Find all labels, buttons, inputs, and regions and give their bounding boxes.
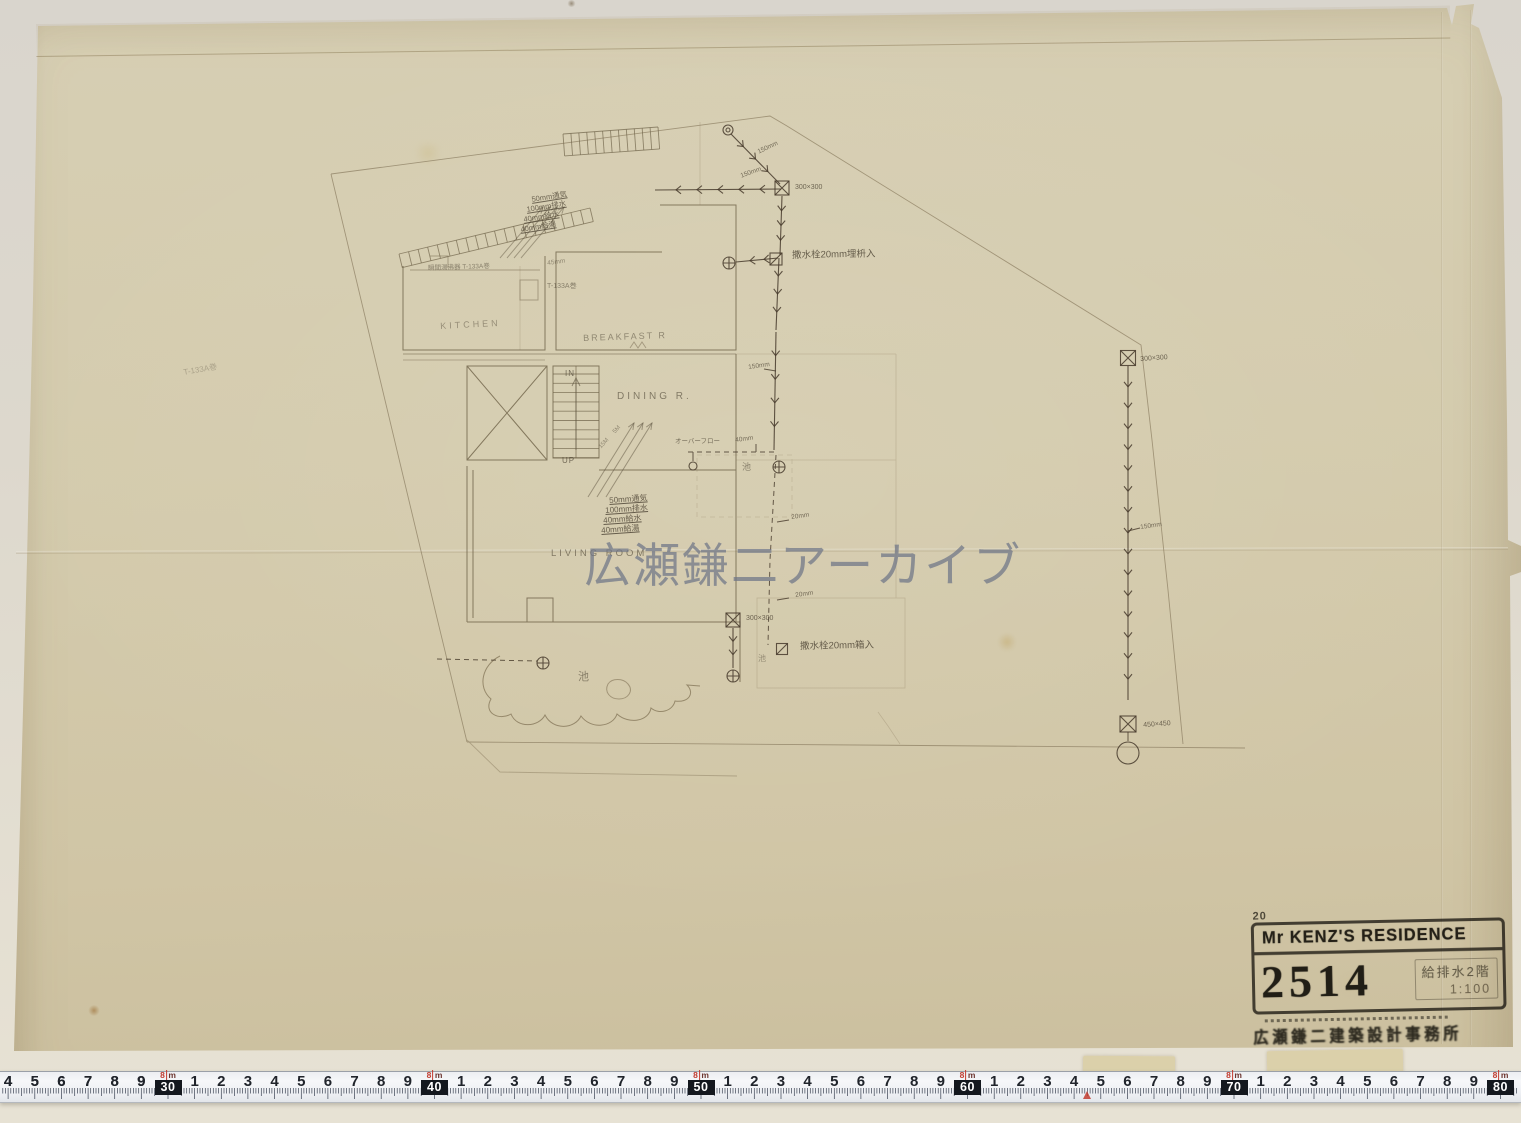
ruler-digit: 4 xyxy=(270,1073,278,1090)
stamp-dotted-edge xyxy=(1265,1013,1448,1023)
ruler-digit: 8 xyxy=(111,1073,119,1090)
ruler-major-number: 30 xyxy=(155,1080,182,1095)
ruler-digit: 6 xyxy=(324,1073,332,1090)
site-boundary xyxy=(331,116,1245,776)
plan-annotation: UP xyxy=(562,457,575,465)
ruler-digit: 2 xyxy=(1017,1073,1025,1090)
ruler-digit: 4 xyxy=(803,1073,811,1090)
ruler-digit: 7 xyxy=(1150,1073,1158,1090)
project-title: Mr KENZ'S RESIDENCE xyxy=(1254,920,1503,956)
ruler-digit: 2 xyxy=(217,1073,225,1090)
ruler-digit: 4 xyxy=(4,1073,12,1090)
ruler-digit: 8 xyxy=(377,1073,385,1090)
ruler-meter-label: 8m xyxy=(1226,1071,1242,1080)
ruler-digit: 6 xyxy=(1123,1073,1131,1090)
plan-annotation: DINING R. xyxy=(617,392,692,402)
plan-annotation: IN xyxy=(565,370,575,378)
plan-annotation: 撒水栓20mm箱入 xyxy=(800,641,874,652)
drawing-scale: 1:100 xyxy=(1422,982,1492,997)
ruler-major-number: 80 xyxy=(1487,1080,1514,1095)
ruler-digit: 7 xyxy=(350,1073,358,1090)
ruler-meter-label: 8m xyxy=(693,1071,709,1080)
drawing-title: 給排水2階 xyxy=(1421,961,1491,981)
ruler-digit: 1 xyxy=(1256,1073,1264,1090)
ruler-digit: 4 xyxy=(1070,1073,1078,1090)
sheet-number-note: 20 xyxy=(1252,910,1266,922)
title-block-border: Mr KENZ'S RESIDENCE 2514 給排水2階 1:100 xyxy=(1251,917,1507,1014)
ruler-digit: 5 xyxy=(830,1073,838,1090)
ruler-meter-label: 8m xyxy=(160,1071,176,1080)
ruler-digit: 1 xyxy=(723,1073,731,1090)
ruler-digit: 3 xyxy=(1043,1073,1051,1090)
ruler-tick-marks xyxy=(0,1072,1521,1102)
title-block-stamp: 20 Mr KENZ'S RESIDENCE 2514 給排水2階 1:100 … xyxy=(1251,917,1508,1047)
ruler-digit: 4 xyxy=(537,1073,545,1090)
ruler-digit: 6 xyxy=(590,1073,598,1090)
ruler-digit: 5 xyxy=(564,1073,572,1090)
ruler-digit: 1 xyxy=(457,1073,465,1090)
ruler-digit: 6 xyxy=(1390,1073,1398,1090)
ruler-meter-label: 8m xyxy=(427,1071,443,1080)
ruler-digit: 9 xyxy=(937,1073,945,1090)
ruler-digit: 7 xyxy=(617,1073,625,1090)
ruler-digit: 9 xyxy=(670,1073,678,1090)
ruler-digit: 9 xyxy=(1470,1073,1478,1090)
ruler-major-number: 40 xyxy=(421,1080,448,1095)
ruler-digit: 3 xyxy=(1310,1073,1318,1090)
plan-annotation: T-133A巻 xyxy=(547,283,577,290)
drawing-number: 2514 xyxy=(1254,952,1375,1012)
ruler-digit: 5 xyxy=(1097,1073,1105,1090)
ruler-digit: 9 xyxy=(137,1073,145,1090)
ruler-digit: 6 xyxy=(57,1073,65,1090)
ruler-digit: 3 xyxy=(510,1073,518,1090)
ruler-digit: 7 xyxy=(1416,1073,1424,1090)
ruler-digit: 5 xyxy=(31,1073,39,1090)
ruler-digit: 3 xyxy=(244,1073,252,1090)
plan-annotation: 池 xyxy=(758,655,766,663)
ruler-major-number: 70 xyxy=(1221,1080,1248,1095)
plan-annotation: 池 xyxy=(742,463,751,472)
archive-watermark: 広瀬鎌二アーカイブ xyxy=(584,527,1022,596)
ruler-digit: 2 xyxy=(750,1073,758,1090)
ruler-digit: 1 xyxy=(190,1073,198,1090)
ruler-digit: 2 xyxy=(1283,1073,1291,1090)
ruler-major-number: 50 xyxy=(688,1080,715,1095)
plan-annotation: 撒水栓20mm埋枡入 xyxy=(792,250,876,261)
ruler-digit: 7 xyxy=(84,1073,92,1090)
plan-annotation: 池 xyxy=(578,672,589,683)
measuring-tape-ruler: 4567891234567891234567891234567891234567… xyxy=(0,1071,1521,1103)
ruler-digit: 2 xyxy=(484,1073,492,1090)
plan-annotation: オーバーフロー xyxy=(675,439,720,446)
plan-annotation: 300×300 xyxy=(795,184,822,191)
pond-outline xyxy=(483,656,700,726)
ruler-digit: 9 xyxy=(404,1073,412,1090)
ruler-meter-label: 8m xyxy=(960,1071,976,1080)
ruler-digit: 5 xyxy=(1363,1073,1371,1090)
ruler-digit: 9 xyxy=(1203,1073,1211,1090)
ruler-major-number: 60 xyxy=(954,1080,981,1095)
ruler-digit: 6 xyxy=(857,1073,865,1090)
ruler-digit: 7 xyxy=(883,1073,891,1090)
ruler-digit: 8 xyxy=(1443,1073,1451,1090)
ruler-digit: 8 xyxy=(910,1073,918,1090)
drawing-title-cell: 給排水2階 1:100 xyxy=(1414,958,1498,1001)
ruler-digit: 1 xyxy=(990,1073,998,1090)
plan-annotation: 300×300 xyxy=(746,615,773,622)
ruler-meter-label: 8m xyxy=(1493,1071,1509,1080)
ruler-digit: 3 xyxy=(777,1073,785,1090)
scanned-drawing-sheet: KITCHENBREAKFAST RDINING R.LIVING ROOMIN… xyxy=(0,0,1521,1123)
ruler-digit: 4 xyxy=(1336,1073,1344,1090)
ruler-digit: 5 xyxy=(297,1073,305,1090)
ruler-digit: 8 xyxy=(644,1073,652,1090)
ruler-digit: 8 xyxy=(1177,1073,1185,1090)
